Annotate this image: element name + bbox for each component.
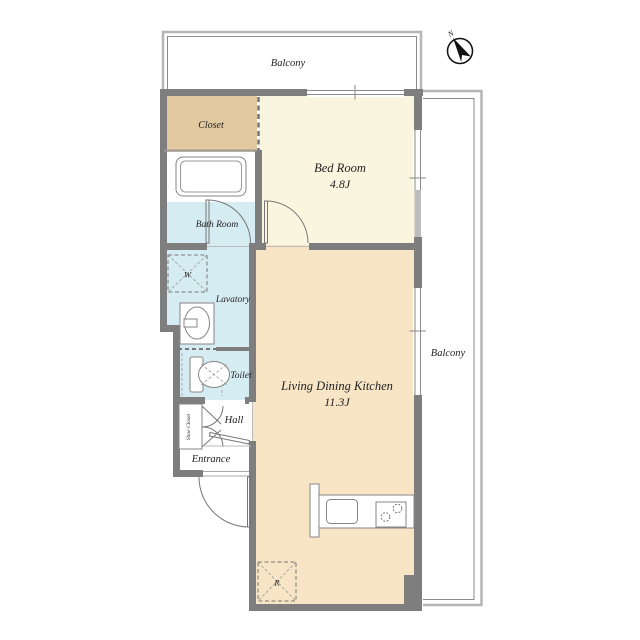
bedroom-ldk-wall-right <box>309 243 422 250</box>
lavatory-label: Lavatory <box>215 295 251 305</box>
hall-label: Hall <box>224 415 244 426</box>
balcony-right-label: Balcony <box>431 348 466 359</box>
bath-south-wall <box>164 243 207 250</box>
toilet-label: Toilet <box>230 371 252 381</box>
bathtub-outer <box>176 157 246 196</box>
west-wall-upper <box>160 89 167 332</box>
toilet-hall-wall-right <box>245 397 249 404</box>
lavatory-toilet-partition <box>216 347 249 351</box>
bedroom-size: 4.8J <box>330 177 351 191</box>
north-compass: N <box>445 27 472 64</box>
east-wall-seg3 <box>414 395 422 575</box>
east-wall-seg2 <box>414 237 422 288</box>
balcony-top-label: Balcony <box>271 58 306 69</box>
kitchen-counter-left <box>310 484 319 537</box>
ldk-floor <box>253 245 418 607</box>
bedroom-ldk-wall-left <box>255 243 266 250</box>
sink-faucet <box>184 319 197 327</box>
entrance-south-wall <box>173 470 203 477</box>
north-wall-left <box>160 89 307 96</box>
bathroom-label: Bath Room <box>196 220 239 230</box>
closet-label: Closet <box>198 120 224 131</box>
east-wall-spandrel <box>415 190 422 237</box>
toilet-hall-wall-left <box>173 397 205 404</box>
shoe-closet-label: Shoe Closet <box>186 413 192 440</box>
compass-north-label: N <box>445 28 455 39</box>
ldk-size: 11.3J <box>324 395 350 409</box>
washer-symbol: W <box>184 270 192 280</box>
bedroom-label: Bed Room <box>314 161 366 175</box>
floor-plan-drawing: W R N Balcony Balcony Clos <box>0 0 640 640</box>
bath-bedroom-wall <box>255 150 262 250</box>
entrance-label: Entrance <box>191 454 231 465</box>
ldk-label: Living Dining Kitchen <box>280 379 393 393</box>
floor-plan-page: W R N Balcony Balcony Clos <box>0 0 640 640</box>
kitchen-stove <box>376 502 406 527</box>
south-wall <box>249 604 422 611</box>
fridge-symbol: R <box>273 578 280 588</box>
entrance-door-arc <box>199 477 249 527</box>
kitchen-sink <box>327 500 358 524</box>
east-wall-seg1 <box>414 89 422 130</box>
